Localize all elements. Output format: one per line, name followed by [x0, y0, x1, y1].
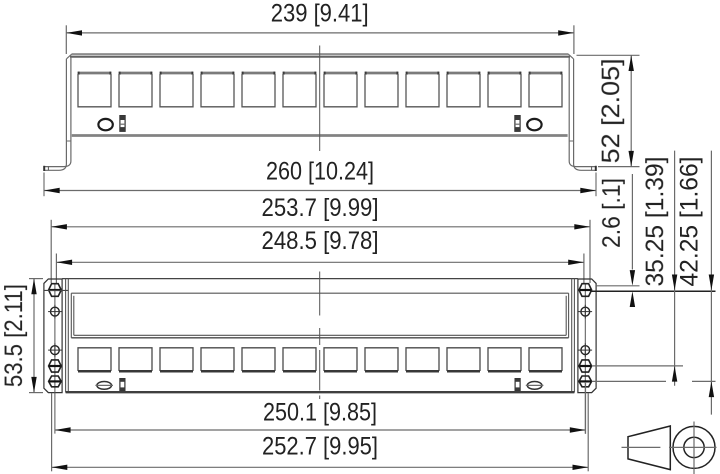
svg-text:42.25 [1.66]: 42.25 [1.66] [676, 157, 704, 287]
svg-text:239 [9.41]: 239 [9.41] [271, 0, 369, 28]
svg-text:250.1 [9.85]: 250.1 [9.85] [263, 398, 377, 426]
svg-text:248.5 [9.78]: 248.5 [9.78] [262, 227, 379, 255]
svg-text:35.25 [1.39]: 35.25 [1.39] [641, 157, 669, 287]
svg-text:252.7 [9.95]: 252.7 [9.95] [262, 432, 378, 460]
svg-text:2.6 [.1]: 2.6 [.1] [598, 178, 626, 248]
svg-text:253.7 [9.99]: 253.7 [9.99] [262, 194, 379, 222]
svg-text:53.5 [2.11]: 53.5 [2.11] [0, 284, 28, 387]
svg-text:52 [2.05]: 52 [2.05] [597, 58, 625, 163]
svg-text:260 [10.24]: 260 [10.24] [266, 157, 374, 185]
